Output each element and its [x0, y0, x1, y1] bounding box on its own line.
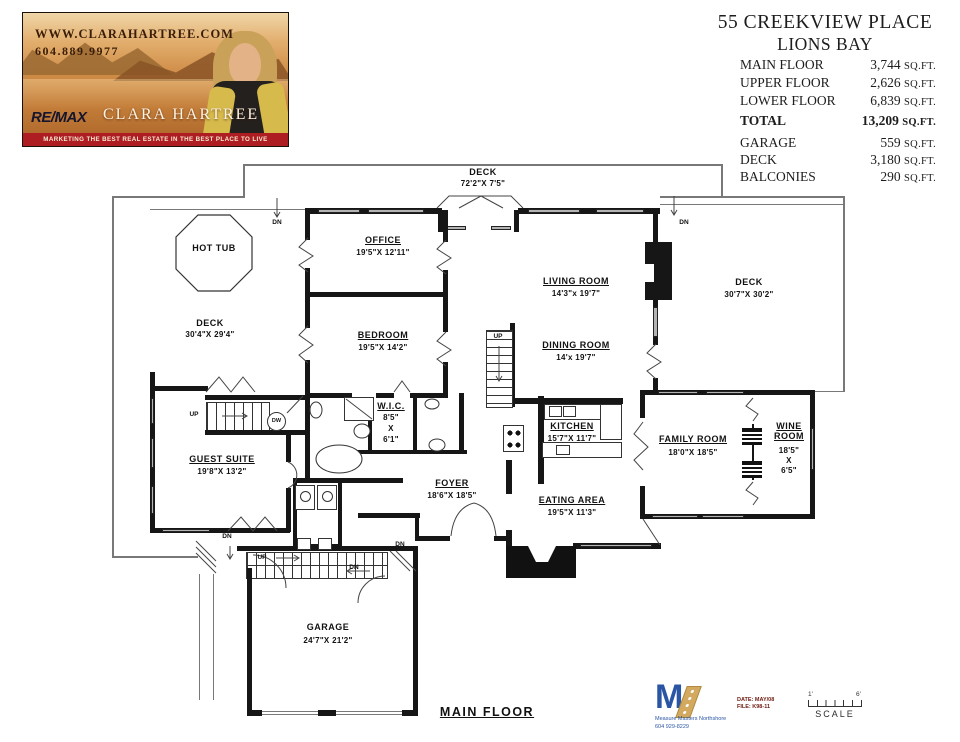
window-zigzag — [746, 482, 758, 505]
room-dims-dining-room: 14'x 19'7" — [556, 353, 596, 362]
room-dims-guest-suite: 19'8"X 13'2" — [197, 467, 246, 476]
stairs-arrow — [222, 413, 247, 419]
dn-label: DN — [679, 219, 688, 226]
dn-label: DN — [272, 219, 281, 226]
flyer-page: WWW.CLARAHARTREE.COM 604.889.9977 RE/MAX… — [0, 0, 960, 742]
scale-bar — [808, 700, 862, 707]
room-label-family-room: FAMILY ROOM — [659, 434, 727, 444]
room-label-garage: GARAGE — [307, 622, 350, 632]
window-zigzag — [299, 326, 313, 363]
up-label: UP — [493, 333, 502, 340]
up-label: UP — [189, 411, 198, 418]
measure-masters-logo: M Measure Masters Northshore 604 929-822… — [655, 684, 725, 740]
room-dims-bedroom: 19'5"X 14'2" — [358, 343, 407, 352]
door-swing — [394, 381, 410, 392]
stamp-date: DATE: MAY/08 — [737, 697, 774, 703]
room-dims-deck-right: 30'7"X 30'2" — [724, 290, 773, 299]
plan-linework — [0, 0, 960, 742]
room-label-deck-top: DECK — [469, 167, 497, 177]
window-zigzag — [634, 422, 648, 470]
dn-label: DN — [222, 533, 231, 540]
room-label-foyer: FOYER — [435, 478, 469, 488]
room-dims-wic: 8'5" — [383, 413, 399, 422]
stairs-arrow — [496, 346, 502, 381]
surveyor-name: Measure Masters Northshore — [655, 716, 726, 722]
stairs-arrow — [276, 555, 299, 561]
deck-door-bay — [437, 196, 523, 208]
dn-arrow — [227, 546, 233, 559]
room-dims-office: 19'5"X 12'11" — [356, 248, 410, 257]
scale-label: SCALE — [815, 709, 855, 719]
scale-tick-left: 1' — [808, 691, 813, 698]
window-zigzag — [437, 240, 451, 274]
room-dims-wine-room: 6'5" — [781, 466, 797, 475]
door-swing — [287, 396, 303, 413]
room-label-deck-left: DECK — [196, 318, 224, 328]
room-label-deck-right: DECK — [735, 277, 763, 287]
room-label-living-room: LIVING ROOM — [543, 276, 609, 286]
room-label-dining-room: DINING ROOM — [542, 340, 610, 350]
room-dims-living-room: 14'3"x 19'7" — [552, 289, 600, 298]
room-dims-wic: X — [388, 424, 394, 433]
bath-sink — [310, 402, 322, 418]
room-label-wine-room: WINE ROOM — [766, 421, 812, 441]
room-dims-wine-room: 18'5" — [779, 446, 800, 455]
room-dims-deck-left: 30'4"X 29'4" — [185, 330, 234, 339]
room-dims-eating-area: 19'5"X 11'3" — [548, 508, 597, 517]
floor-name: MAIN FLOOR — [440, 705, 534, 719]
window-zigzag — [746, 398, 758, 421]
dn-arrow — [671, 196, 677, 215]
stamp-file: FILE: K98-11 — [737, 704, 770, 710]
room-label-office: OFFICE — [365, 235, 401, 245]
powder-sink — [425, 399, 439, 409]
room-dims-family-room: 18'0"X 18'5" — [668, 448, 717, 457]
room-label-guest-suite: GUEST SUITE — [189, 454, 255, 464]
up-label: UP — [257, 554, 266, 561]
room-dims-garage: 24'7"X 21'2" — [303, 636, 352, 645]
dn-label: DN — [395, 541, 404, 548]
window-zigzag — [206, 377, 255, 392]
room-dims-wic: 6'1" — [383, 435, 399, 444]
bathtub — [316, 445, 362, 473]
door-swing — [288, 462, 297, 488]
window-zigzag — [299, 238, 313, 272]
window-zigzag — [647, 344, 661, 379]
shower-glass — [346, 399, 372, 419]
front-door-swing — [451, 503, 496, 536]
room-label-hot-tub: HOT TUB — [192, 243, 236, 253]
room-dims-foyer: 18'6"X 18'5" — [427, 491, 476, 500]
wall-step — [643, 519, 660, 545]
surveyor-phone: 604 929-8229 — [655, 724, 689, 730]
deck-steps — [196, 541, 216, 573]
side-steps — [390, 551, 416, 571]
room-dims-deck-top: 72'2"X 7'5" — [461, 179, 506, 188]
room-label-eating-area: EATING AREA — [539, 495, 606, 505]
window-zigzag — [437, 332, 451, 366]
dumbwaiter-marker: DW — [267, 412, 286, 431]
toilet — [354, 424, 370, 438]
powder-toilet — [429, 439, 445, 451]
room-label-wic: W.I.C. — [377, 401, 405, 411]
french-door-swing — [459, 196, 503, 208]
door-swing — [358, 576, 385, 603]
porch-notch — [528, 546, 556, 562]
dn-arrow — [274, 198, 280, 217]
hot-tub-outline — [176, 215, 252, 291]
room-label-bedroom: BEDROOM — [358, 330, 409, 340]
room-dims-wine-room: X — [786, 456, 792, 465]
scale-tick-right: 6' — [856, 691, 861, 698]
room-dims-kitchen: 15'7"X 11'7" — [548, 434, 597, 443]
room-label-kitchen: KITCHEN — [550, 421, 594, 431]
dn-label: DN — [349, 564, 358, 571]
window-zigzag — [228, 517, 277, 531]
